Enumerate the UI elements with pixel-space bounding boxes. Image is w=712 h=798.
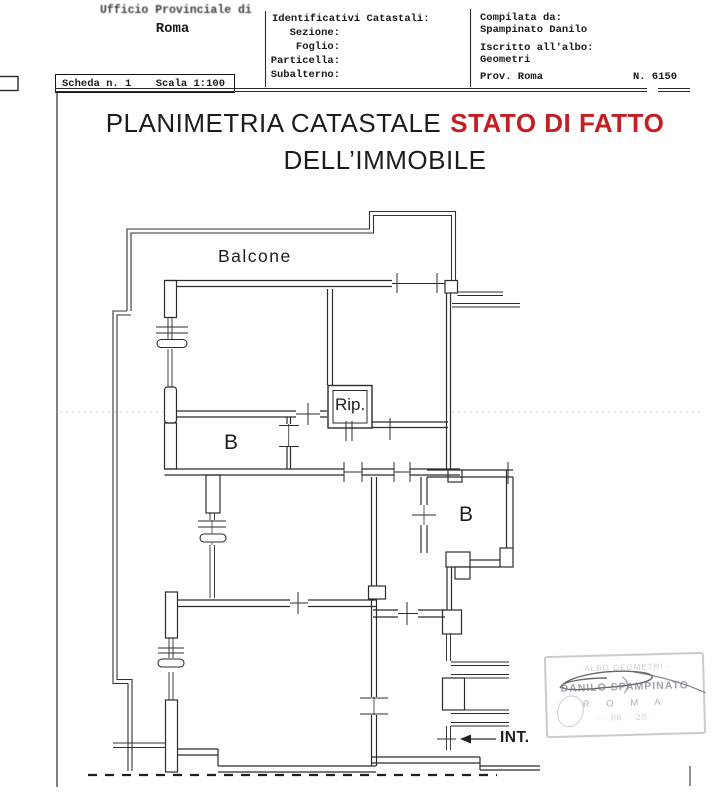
balcony-label: Balcone [218,246,292,267]
entrance-label: INT. [500,729,530,747]
stamp-name: DANILO SPAMPINATO [547,679,703,695]
storage-room-label: Rip. [335,395,365,415]
cadastral-document-page: Ufficio Provinciale di Roma Identificati… [0,0,712,798]
stamp-top-line: · ALBO GEOMETRI · [546,661,702,674]
bathroom-left-label: B [224,431,238,455]
surveyor-stamp: · ALBO GEOMETRI · DANILO SPAMPINATO R O … [544,652,706,738]
bathroom-right-label: B [459,503,473,527]
